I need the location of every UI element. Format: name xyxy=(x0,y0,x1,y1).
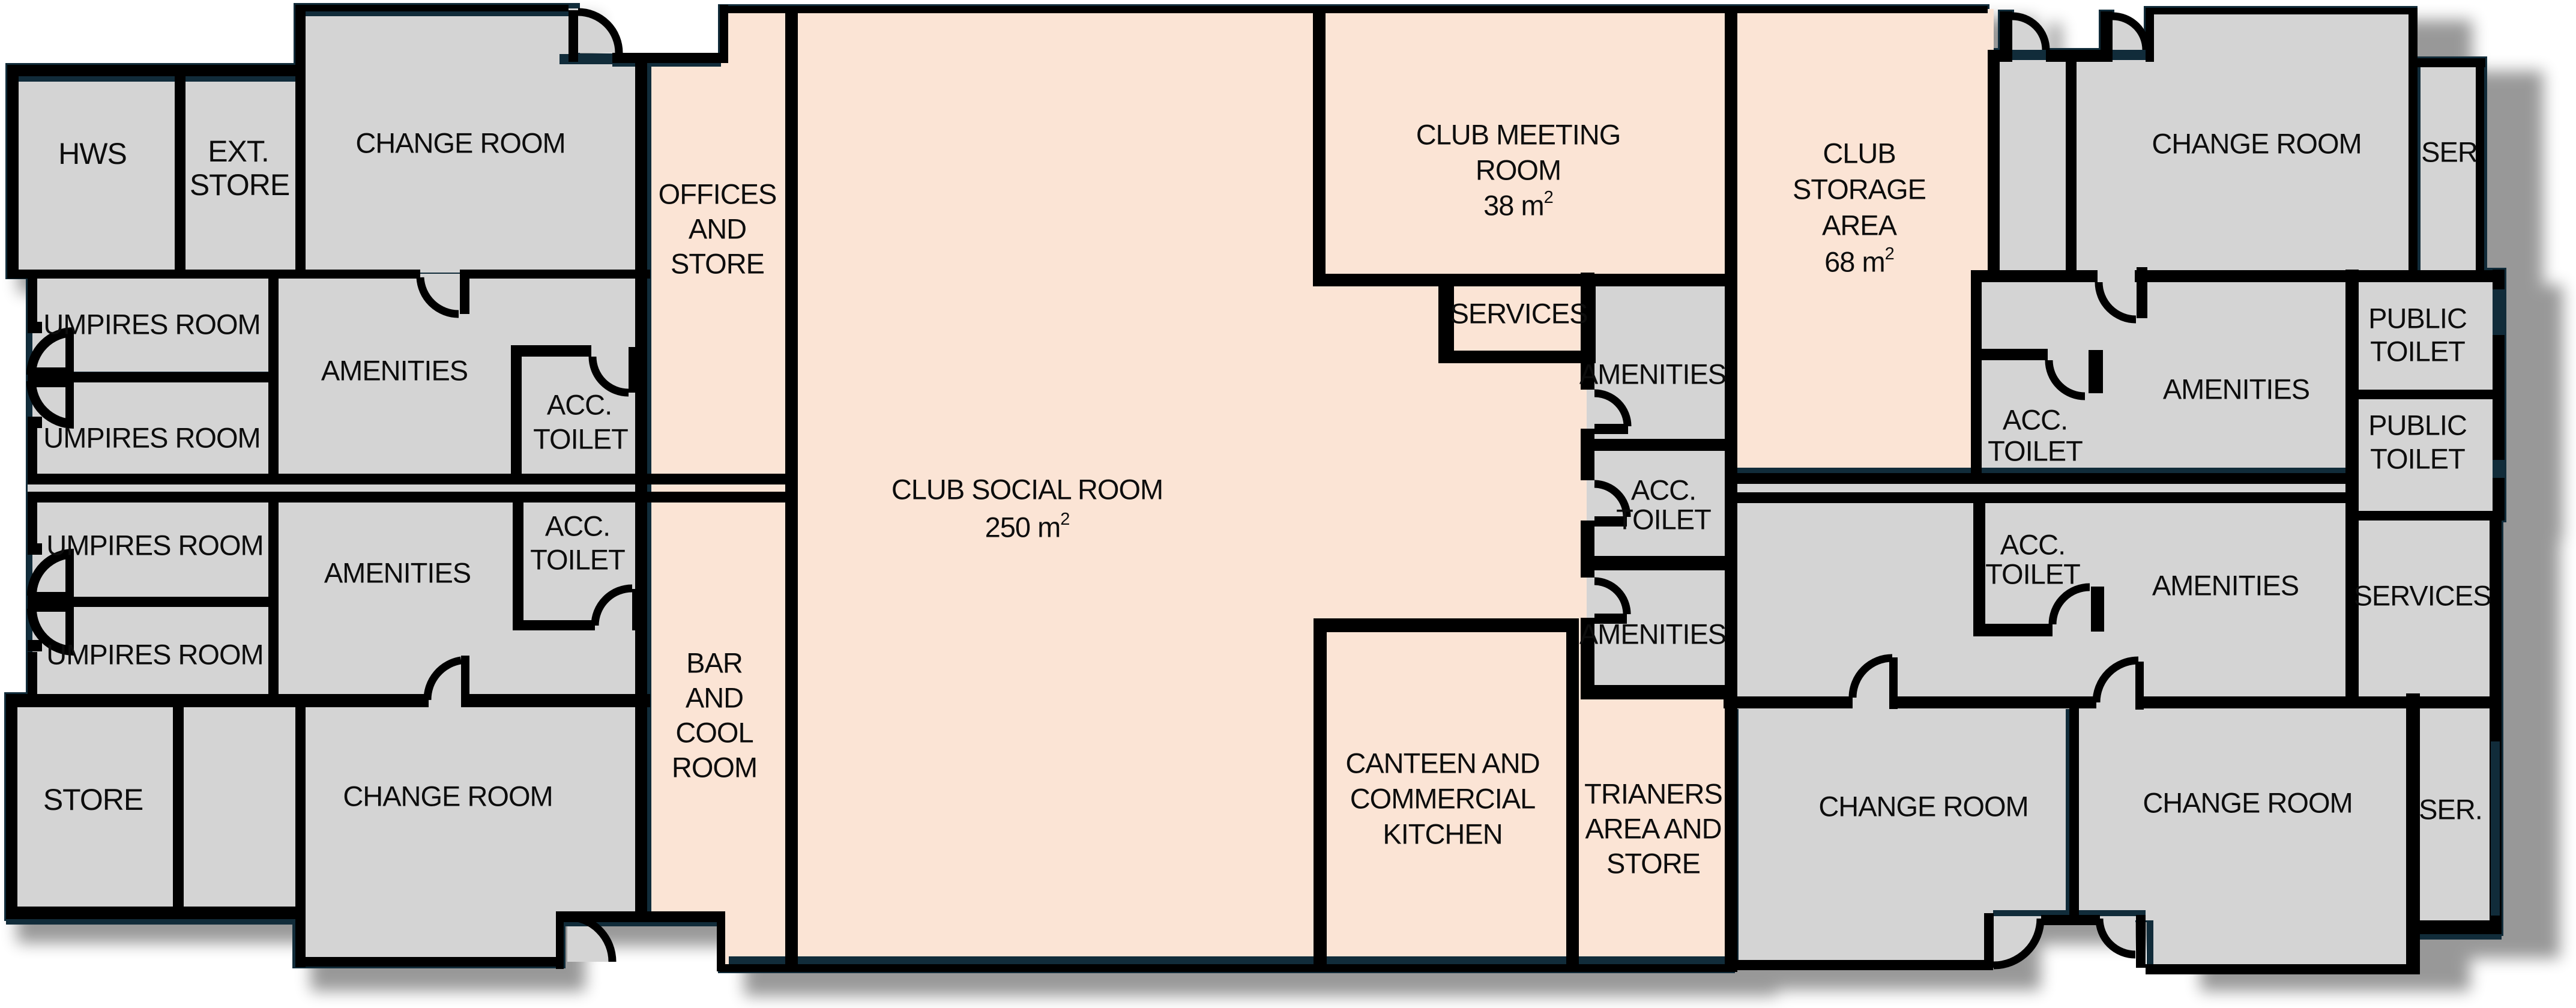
svg-text:AREA: AREA xyxy=(1822,210,1898,241)
svg-text:ACC.: ACC. xyxy=(2000,529,2065,561)
svg-text:AMENITIES: AMENITIES xyxy=(2152,570,2299,602)
svg-text:PUBLIC: PUBLIC xyxy=(2368,303,2467,334)
svg-text:CLUB MEETING: CLUB MEETING xyxy=(1416,119,1621,151)
svg-text:CHANGE ROOM: CHANGE ROOM xyxy=(355,127,565,159)
svg-text:AND: AND xyxy=(686,682,743,714)
svg-text:AND: AND xyxy=(689,213,746,245)
svg-text:ROOM: ROOM xyxy=(672,752,757,783)
svg-text:TOILET: TOILET xyxy=(1988,435,2083,467)
svg-text:CLUB SOCIAL ROOM: CLUB SOCIAL ROOM xyxy=(891,474,1163,506)
svg-text:AMENITIES: AMENITIES xyxy=(321,355,468,387)
svg-text:SERVICES: SERVICES xyxy=(2354,580,2491,612)
svg-text:AMENITIES: AMENITIES xyxy=(1579,618,1726,650)
svg-text:STORE: STORE xyxy=(43,783,143,816)
svg-text:KITCHEN: KITCHEN xyxy=(1383,818,1502,850)
svg-text:AMENITIES: AMENITIES xyxy=(2163,373,2309,405)
svg-text:TOILET: TOILET xyxy=(530,544,625,576)
svg-text:ACC.: ACC. xyxy=(547,389,612,421)
svg-text:68 m2: 68 m2 xyxy=(1824,244,1894,278)
svg-text:TOILET: TOILET xyxy=(533,423,628,455)
svg-text:COOL: COOL xyxy=(675,717,753,749)
svg-text:CHANGE ROOM: CHANGE ROOM xyxy=(2143,787,2352,819)
svg-text:CLUB: CLUB xyxy=(1823,137,1895,169)
svg-text:UMPIRES ROOM: UMPIRES ROOM xyxy=(46,530,263,561)
svg-text:ROOM: ROOM xyxy=(1476,154,1561,186)
svg-text:TOILET: TOILET xyxy=(1985,558,2080,590)
svg-text:CHANGE ROOM: CHANGE ROOM xyxy=(2152,128,2361,160)
svg-text:HWS: HWS xyxy=(58,137,127,171)
svg-text:UMPIRES ROOM: UMPIRES ROOM xyxy=(43,309,260,340)
svg-text:EXT.: EXT. xyxy=(208,134,269,168)
svg-text:ACC.: ACC. xyxy=(2003,404,2068,436)
svg-text:SER: SER xyxy=(2421,136,2478,168)
svg-text:CANTEEN AND: CANTEEN AND xyxy=(1345,747,1539,779)
svg-text:AMENITIES: AMENITIES xyxy=(1579,358,1726,390)
svg-text:ACC.: ACC. xyxy=(1631,474,1696,506)
svg-text:STORE: STORE xyxy=(671,248,764,280)
svg-text:UMPIRES ROOM: UMPIRES ROOM xyxy=(43,422,260,454)
svg-text:CHANGE ROOM: CHANGE ROOM xyxy=(343,780,552,812)
svg-text:CHANGE ROOM: CHANGE ROOM xyxy=(1818,791,2028,822)
svg-text:OFFICES: OFFICES xyxy=(659,178,777,210)
svg-text:AMENITIES: AMENITIES xyxy=(324,557,471,589)
svg-text:AREA AND: AREA AND xyxy=(1585,813,1721,845)
svg-text:TRIANERS: TRIANERS xyxy=(1584,778,1722,810)
svg-text:UMPIRES ROOM: UMPIRES ROOM xyxy=(46,639,263,671)
svg-text:38 m2: 38 m2 xyxy=(1483,188,1553,222)
svg-text:BAR: BAR xyxy=(686,647,743,679)
svg-text:TOILET: TOILET xyxy=(2370,336,2465,367)
svg-text:ACC.: ACC. xyxy=(545,510,610,542)
svg-text:STORE: STORE xyxy=(1606,848,1700,880)
svg-text:250 m2: 250 m2 xyxy=(985,510,1070,543)
svg-text:STORE: STORE xyxy=(190,168,289,202)
svg-text:TOILET: TOILET xyxy=(2370,443,2465,475)
svg-text:TOILET: TOILET xyxy=(1616,504,1711,536)
svg-text:SERVICES: SERVICES xyxy=(1450,298,1588,330)
svg-text:PUBLIC: PUBLIC xyxy=(2368,409,2467,441)
svg-text:COMMERCIAL: COMMERCIAL xyxy=(1350,783,1536,815)
svg-text:STORAGE: STORAGE xyxy=(1793,174,1926,205)
svg-text:SER.: SER. xyxy=(2419,794,2482,825)
